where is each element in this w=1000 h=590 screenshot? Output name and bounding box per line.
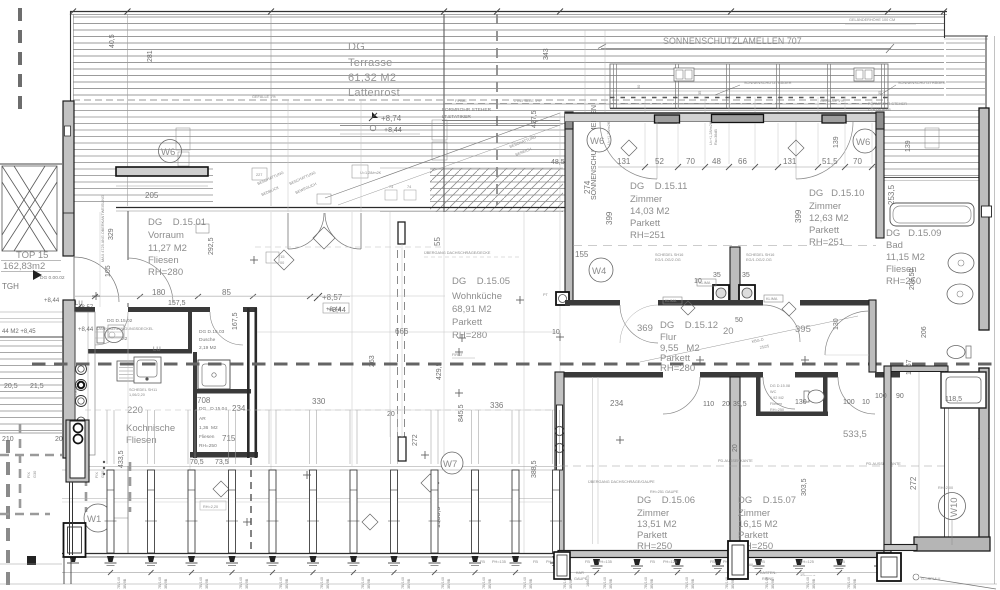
svg-text:272: 272 <box>909 476 918 490</box>
svg-text:44 M2 +8,45: 44 M2 +8,45 <box>2 329 36 335</box>
svg-text:ÜBERGANG DACHSCHRÄGE/GAUPE: ÜBERGANG DACHSCHRÄGE/GAUPE <box>588 480 655 484</box>
svg-text:Vorraum: Vorraum <box>148 230 184 241</box>
svg-text:Parkett: Parkett <box>809 225 839 236</box>
svg-text:3B/9B: 3B/9B <box>853 578 857 589</box>
svg-text:FB: FB <box>650 560 655 564</box>
svg-text:W6: W6 <box>161 147 175 158</box>
svg-text:130: 130 <box>795 399 807 406</box>
svg-text:131: 131 <box>617 157 631 166</box>
svg-text:167,5: 167,5 <box>232 312 239 330</box>
svg-text:RH=251: RH=251 <box>809 237 844 248</box>
svg-text:90: 90 <box>637 85 641 89</box>
svg-text:329: 329 <box>108 228 115 240</box>
svg-text:3B/9B: 3B/9B <box>447 578 451 589</box>
svg-text:433,5: 433,5 <box>118 450 125 468</box>
svg-text:68,91 M2: 68,91 M2 <box>452 304 492 315</box>
svg-text:+8,44: +8,44 <box>44 298 60 304</box>
svg-text:20: 20 <box>387 411 395 418</box>
svg-text:PH=135: PH=135 <box>598 560 612 564</box>
svg-text:Kochnische: Kochnische <box>126 423 175 434</box>
svg-text:205: 205 <box>145 191 159 200</box>
svg-text:LU: LU <box>153 347 161 353</box>
svg-text:131: 131 <box>783 157 797 166</box>
svg-text:7B/140: 7B/140 <box>158 577 162 589</box>
svg-text:20: 20 <box>55 436 63 443</box>
svg-text:DG D.15.06: DG D.15.06 <box>637 495 695 506</box>
svg-text:7B/140: 7B/140 <box>685 577 689 589</box>
svg-text:Fliesen: Fliesen <box>126 435 157 446</box>
svg-text:253,5: 253,5 <box>887 184 896 205</box>
svg-text:DG D.15.08: DG D.15.08 <box>770 384 790 388</box>
svg-text:55: 55 <box>433 237 442 246</box>
svg-text:LT.STATIKER: LT.STATIKER <box>868 108 891 112</box>
svg-text:70,5: 70,5 <box>190 459 204 466</box>
svg-text:Zimmer: Zimmer <box>630 194 662 205</box>
svg-text:210: 210 <box>2 436 14 443</box>
svg-text:110: 110 <box>703 401 714 408</box>
svg-text:369: 369 <box>637 323 653 334</box>
svg-text:35: 35 <box>713 272 721 279</box>
svg-text:FIRST: FIRST <box>452 353 464 357</box>
svg-text:LU: LU <box>75 301 83 307</box>
svg-text:100: 100 <box>843 399 855 406</box>
svg-text:50: 50 <box>735 317 743 324</box>
svg-text:427,5: 427,5 <box>531 110 538 128</box>
svg-text:+8,44: +8,44 <box>384 127 402 134</box>
svg-text:G30: G30 <box>101 471 105 478</box>
svg-text:PH=125: PH=125 <box>800 560 814 564</box>
svg-text:399: 399 <box>794 209 803 223</box>
svg-text:KAR: KAR <box>576 571 584 575</box>
svg-text:+8,74: +8,74 <box>381 114 402 123</box>
svg-text:+8,57: +8,57 <box>322 293 343 302</box>
svg-text:20: 20 <box>722 401 730 408</box>
svg-text:162,83m2: 162,83m2 <box>3 261 45 272</box>
svg-text:PH=125: PH=125 <box>663 560 677 564</box>
svg-text:715: 715 <box>222 434 236 443</box>
svg-text:RH=250: RH=250 <box>770 408 784 412</box>
svg-text:AR: AR <box>199 416 206 422</box>
svg-text:105: 105 <box>105 265 112 277</box>
svg-text:1S——→: 1S——→ <box>800 573 816 577</box>
svg-text:157,5: 157,5 <box>168 300 186 307</box>
svg-text:12,63 M2: 12,63 M2 <box>809 213 849 224</box>
svg-text:10: 10 <box>552 329 560 336</box>
svg-text:GEFÄLLE 1%: GEFÄLLE 1% <box>252 95 276 99</box>
svg-text:W4: W4 <box>592 266 606 277</box>
svg-text:3B/9B: 3B/9B <box>205 578 209 589</box>
svg-text:DG D.15.09: DG D.15.09 <box>886 228 941 239</box>
svg-text:PT: PT <box>543 293 549 297</box>
svg-text:1,36 M2: 1,36 M2 <box>199 425 218 431</box>
svg-text:52: 52 <box>655 157 664 166</box>
svg-text:303,5: 303,5 <box>801 478 808 496</box>
svg-text:W6: W6 <box>856 137 870 148</box>
svg-text:155: 155 <box>575 250 589 259</box>
svg-text:DG D.15.05: DG D.15.05 <box>452 276 510 287</box>
svg-text:395: 395 <box>795 324 811 335</box>
svg-text:RH=251 GAUPE: RH=251 GAUPE <box>650 490 679 494</box>
svg-text:Dusche: Dusche <box>199 337 216 343</box>
svg-text:7B/140: 7B/140 <box>603 577 607 589</box>
svg-text:66: 66 <box>738 157 747 166</box>
svg-text:RH=251: RH=251 <box>630 230 665 241</box>
svg-text:Fliesen: Fliesen <box>148 255 179 266</box>
svg-text:DG D.15.02: DG D.15.02 <box>107 318 133 324</box>
svg-text:16,15 M2: 16,15 M2 <box>738 519 778 530</box>
svg-text:1066,5: 1066,5 <box>586 575 590 587</box>
svg-text:3B/9B: 3B/9B <box>691 578 695 589</box>
svg-text:DG D.15.03: DG D.15.03 <box>199 329 225 335</box>
svg-text:KLIMA: KLIMA <box>766 297 778 301</box>
svg-text:FIRME: FIRME <box>455 99 467 103</box>
svg-text:343: 343 <box>543 48 550 60</box>
svg-text:2,19 M2: 2,19 M2 <box>199 345 217 351</box>
svg-text:W10: W10 <box>949 497 960 517</box>
svg-text:SONNENSCHUTZLAMELLEN 707: SONNENSCHUTZLAMELLEN 707 <box>663 36 802 46</box>
svg-text:48: 48 <box>712 157 721 166</box>
svg-text:DG D.15.04: DG D.15.04 <box>199 406 227 412</box>
svg-text:FB: FB <box>533 560 538 564</box>
svg-text:39,5: 39,5 <box>733 401 747 408</box>
svg-text:FB: FB <box>840 560 845 564</box>
svg-text:Lattenrost: Lattenrost <box>348 87 400 99</box>
svg-text:10: 10 <box>862 399 870 406</box>
svg-text:206: 206 <box>921 326 928 338</box>
svg-text:LT.STATIKER: LT.STATIKER <box>442 114 471 120</box>
svg-text:7B/140: 7B/140 <box>482 577 486 589</box>
svg-text:73,5: 73,5 <box>215 459 229 466</box>
svg-text:3B/9B: 3B/9B <box>529 578 533 589</box>
svg-text:3B/9B: 3B/9B <box>367 578 371 589</box>
svg-text:13,51 M2: 13,51 M2 <box>637 519 677 530</box>
svg-text:FB: FB <box>585 560 590 564</box>
svg-text:388,5: 388,5 <box>531 460 538 478</box>
svg-text:7B/140: 7B/140 <box>361 577 365 589</box>
svg-text:FORMROHR STEHER: FORMROHR STEHER <box>868 102 907 106</box>
svg-text:90: 90 <box>896 393 904 400</box>
svg-text:7B/140: 7B/140 <box>847 577 851 589</box>
svg-text:←GEFÄLLE 1%: ←GEFÄLLE 1% <box>513 99 541 103</box>
svg-text:3B/9B: 3B/9B <box>285 578 289 589</box>
svg-text:74: 74 <box>389 185 393 189</box>
svg-text:RH=2,00: RH=2,00 <box>938 486 953 490</box>
svg-text:KAMIN BEREINIGUNGSDECKEL: KAMIN BEREINIGUNGSDECKEL <box>96 327 153 331</box>
svg-text:20: 20 <box>732 444 739 452</box>
svg-text:FB: FB <box>480 560 485 564</box>
svg-text:RINNE: RINNE <box>762 577 774 581</box>
svg-text:3B/9B: 3B/9B <box>407 578 411 589</box>
svg-text:PD-AUSSENKANTE: PD-AUSSENKANTE <box>718 459 753 463</box>
svg-text:180: 180 <box>152 288 166 297</box>
svg-text:74: 74 <box>407 185 411 189</box>
svg-text:PH=135: PH=135 <box>492 560 506 564</box>
svg-text:FIX: FIX <box>27 472 31 478</box>
svg-text:Fliesen: Fliesen <box>770 402 782 406</box>
svg-text:533,5: 533,5 <box>843 429 867 440</box>
svg-text:Zimmer: Zimmer <box>637 508 669 519</box>
svg-text:336: 336 <box>490 401 504 410</box>
svg-text:3B/9B: 3B/9B <box>123 578 127 589</box>
svg-text:RH=280: RH=280 <box>148 267 183 278</box>
svg-text:139: 139 <box>905 140 912 152</box>
svg-text:KLIMA: KLIMA <box>699 281 711 285</box>
svg-text:DG: DG <box>348 41 365 53</box>
svg-text:Flur: Flur <box>660 332 676 343</box>
svg-text:7B/140: 7B/140 <box>644 577 648 589</box>
svg-text:T15: T15 <box>278 255 285 259</box>
svg-text:GEFÄLLE 1%: GEFÄLLE 1% <box>820 99 844 103</box>
svg-text:1,92 M2: 1,92 M2 <box>770 396 784 400</box>
svg-text:Wohnküche: Wohnküche <box>452 291 502 302</box>
svg-text:7B/140: 7B/140 <box>279 577 283 589</box>
svg-text:3B/9B: 3B/9B <box>650 578 654 589</box>
svg-text:35: 35 <box>742 272 750 279</box>
svg-text:Parkett: Parkett <box>630 218 660 229</box>
svg-text:7B/140: 7B/140 <box>239 577 243 589</box>
svg-text:3B/9B: 3B/9B <box>812 578 816 589</box>
svg-text:70: 70 <box>853 157 862 166</box>
svg-text:272: 272 <box>412 434 419 446</box>
svg-text:DG D.15.11: DG D.15.11 <box>630 181 687 192</box>
svg-text:845,5: 845,5 <box>458 404 465 422</box>
svg-text:7B/140: 7B/140 <box>320 577 324 589</box>
svg-text:100: 100 <box>875 393 887 400</box>
svg-text:3B/9B: 3B/9B <box>488 578 492 589</box>
svg-text:WC: WC <box>770 390 777 394</box>
svg-text:SONNENSCHUTZTRÄGER: SONNENSCHUTZTRÄGER <box>898 81 946 85</box>
svg-text:70: 70 <box>686 157 695 166</box>
svg-text:EG/1.OG/2.OG: EG/1.OG/2.OG <box>655 258 681 262</box>
svg-text:Parkett: Parkett <box>738 530 768 541</box>
svg-text:SCHEDEL SH16: SCHEDEL SH16 <box>655 253 683 257</box>
svg-text:Parkett: Parkett <box>637 530 667 541</box>
svg-text:W7: W7 <box>443 459 457 470</box>
svg-text:RH=280: RH=280 <box>660 363 695 374</box>
svg-text:292,5: 292,5 <box>208 237 215 255</box>
svg-text:Ra=36dB: Ra=36dB <box>714 129 718 145</box>
svg-text:FORMROHR STEHER: FORMROHR STEHER <box>442 107 492 113</box>
svg-text:139: 139 <box>833 136 840 148</box>
svg-text:399: 399 <box>605 211 614 225</box>
svg-text:RH=250: RH=250 <box>199 443 217 449</box>
svg-text:Fliesen: Fliesen <box>199 434 215 440</box>
svg-text:21,5: 21,5 <box>30 383 44 390</box>
svg-text:Zimmer: Zimmer <box>738 508 770 519</box>
svg-text:40,5: 40,5 <box>109 34 116 48</box>
svg-text:U=+1,28/m2K: U=+1,28/m2K <box>709 121 713 145</box>
svg-text:RH=280: RH=280 <box>452 330 487 341</box>
svg-text:61,32 M2: 61,32 M2 <box>348 72 396 84</box>
svg-text:708: 708 <box>197 396 211 405</box>
svg-text:3B/9B: 3B/9B <box>569 578 573 589</box>
svg-text:RH=2,20: RH=2,20 <box>203 505 218 509</box>
svg-text:3B/9B: 3B/9B <box>164 578 168 589</box>
svg-text:11,27 M2: 11,27 M2 <box>148 243 187 254</box>
svg-text:DG D.15.01: DG D.15.01 <box>148 217 206 228</box>
svg-text:+8,44: +8,44 <box>78 327 94 333</box>
svg-text:ÜBERGANG DACHSCHRÄGE/DECKE: ÜBERGANG DACHSCHRÄGE/DECKE <box>424 251 491 255</box>
svg-text:FB: FB <box>710 560 715 564</box>
svg-text:7B/140: 7B/140 <box>523 577 527 589</box>
svg-text:7B/140: 7B/140 <box>806 577 810 589</box>
svg-text:U=+1,28/m2K: U=+1,28/m2K <box>607 121 611 145</box>
svg-text:3B/9B: 3B/9B <box>609 578 613 589</box>
svg-text:234: 234 <box>610 399 624 408</box>
svg-text:274: 274 <box>583 180 592 194</box>
svg-text:1,06/2,20: 1,06/2,20 <box>129 393 145 397</box>
svg-text:U=1,28/m2K: U=1,28/m2K <box>360 171 382 175</box>
svg-text:KLIMA: KLIMA <box>665 299 677 303</box>
svg-text:TGH: TGH <box>2 282 19 291</box>
svg-text:11,15 M2: 11,15 M2 <box>886 252 925 263</box>
svg-text:220: 220 <box>127 405 143 416</box>
svg-text:DG D.15.07: DG D.15.07 <box>738 495 796 506</box>
svg-text:234: 234 <box>232 404 246 413</box>
svg-text:14,03 M2: 14,03 M2 <box>630 206 670 217</box>
svg-text:DG D.15.12: DG D.15.12 <box>660 320 718 331</box>
svg-text:3B/9B: 3B/9B <box>326 578 330 589</box>
svg-text:281: 281 <box>147 50 154 62</box>
svg-text:FIX: FIX <box>95 472 99 478</box>
svg-text:SCHEDEL SH11: SCHEDEL SH11 <box>129 388 157 392</box>
svg-text:7B/140: 7B/140 <box>117 577 121 589</box>
svg-text:7B/140: 7B/140 <box>401 577 405 589</box>
svg-text:DG D.15.10: DG D.15.10 <box>809 188 864 199</box>
svg-text:DG 0.00.02: DG 0.00.02 <box>40 275 65 281</box>
svg-text:EG/1.OG/2.OG: EG/1.OG/2.OG <box>746 258 772 262</box>
svg-text:SCHEDEL SH16: SCHEDEL SH16 <box>746 253 774 257</box>
svg-text:W1: W1 <box>87 514 101 525</box>
svg-text:Bad: Bad <box>886 240 903 251</box>
svg-text:3B/9B: 3B/9B <box>245 578 249 589</box>
svg-text:TOP 15: TOP 15 <box>16 250 48 261</box>
svg-text:GELÄNDERHÖHE 100 CM: GELÄNDERHÖHE 100 CM <box>849 18 895 22</box>
svg-text:7B/140: 7B/140 <box>441 577 445 589</box>
svg-text:Parkett: Parkett <box>452 317 482 328</box>
svg-text:35: 35 <box>698 91 702 95</box>
svg-text:20,5: 20,5 <box>4 383 18 390</box>
svg-text:Terrasse: Terrasse <box>348 57 393 69</box>
svg-text:+8,44: +8,44 <box>326 307 342 313</box>
svg-text:G—SPULU: G—SPULU <box>921 577 941 581</box>
svg-text:KASTEN-: KASTEN- <box>760 571 777 575</box>
svg-text:FB: FB <box>760 560 765 564</box>
svg-text:7B/140: 7B/140 <box>199 577 203 589</box>
svg-text:208,50: 208,50 <box>909 268 916 290</box>
svg-text:00: 00 <box>280 261 284 265</box>
svg-text:48,5: 48,5 <box>551 159 565 166</box>
svg-text:118,5: 118,5 <box>945 396 962 403</box>
svg-text:SONNENSCHUTZTRÄGER: SONNENSCHUTZTRÄGER <box>744 81 792 85</box>
svg-text:85: 85 <box>222 288 231 297</box>
svg-text:G30: G30 <box>33 471 37 478</box>
svg-text:51,5: 51,5 <box>822 157 838 166</box>
svg-text:330: 330 <box>312 397 326 406</box>
svg-text:227: 227 <box>256 173 262 177</box>
svg-text:MAX 4725 ANG.OBERKANTWEISUNG: MAX 4725 ANG.OBERKANTWEISUNG <box>101 195 105 262</box>
svg-text:Zimmer: Zimmer <box>809 201 841 212</box>
svg-text:20: 20 <box>723 326 734 337</box>
